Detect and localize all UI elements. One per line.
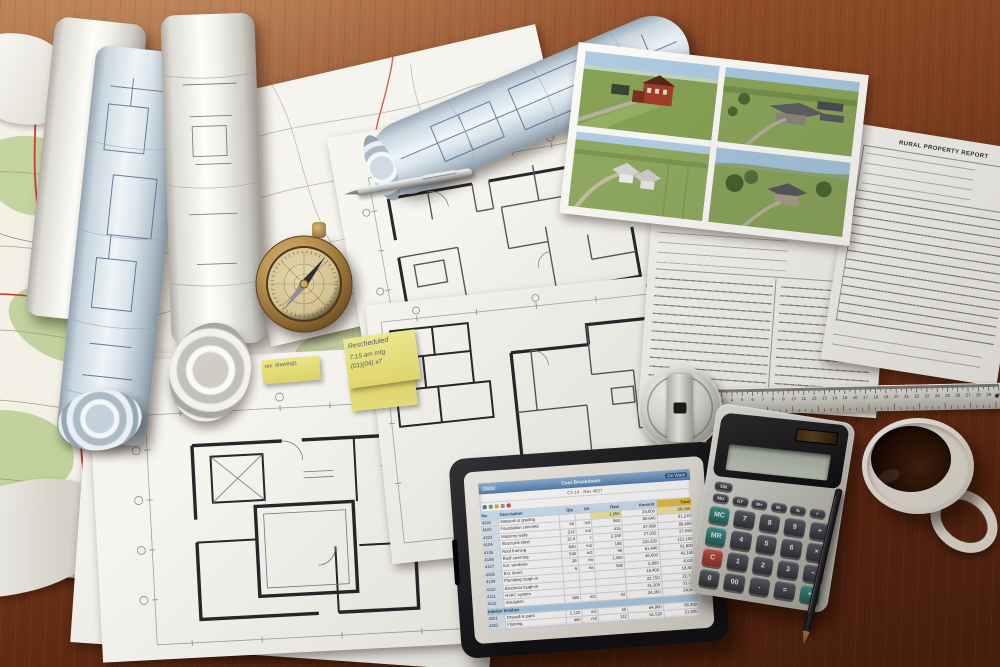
tablet-bezel: Done Cost Breakdown On Work Ch 14 · Rev … xyxy=(463,456,714,644)
ruler-number-17: 17 xyxy=(863,395,868,400)
calculator-key-3[interactable]: 3 xyxy=(777,559,800,579)
sheet-cell[interactable]: 580 xyxy=(565,595,582,603)
sheet-cell[interactable]: 4104 xyxy=(482,541,501,549)
calculator-key-0[interactable]: 0 xyxy=(698,568,721,588)
calculator-key-00[interactable]: 00 xyxy=(723,572,746,592)
calculator-key-4[interactable]: 4 xyxy=(730,530,753,550)
sheet-cell[interactable]: 4201 xyxy=(487,615,506,623)
calculator-on-key[interactable]: ON xyxy=(714,481,733,492)
sheet-cell[interactable]: 4101 xyxy=(481,519,500,527)
ruler-number-13: 13 xyxy=(822,395,827,400)
ruler-hang-hole xyxy=(995,394,999,398)
calculator-display xyxy=(725,444,831,480)
ruler-number-22: 22 xyxy=(914,393,919,398)
ruler-number-20: 20 xyxy=(894,394,899,399)
sheet-cell[interactable]: 84 xyxy=(560,521,577,529)
sheet-cell[interactable]: ea xyxy=(579,564,596,572)
sheet-cell[interactable]: 28,900 xyxy=(664,616,699,625)
tablet-sheet-body[interactable]: NoDescriptionQtyUnRateAmountTotal4101Sit… xyxy=(480,498,700,631)
form-body-lines xyxy=(836,194,1000,345)
ruler-number-29: 29 xyxy=(986,392,991,397)
sheet-cell[interactable]: ea xyxy=(578,557,595,565)
ruler-number-14: 14 xyxy=(832,395,837,400)
calculator-key-C[interactable]: C xyxy=(701,547,724,567)
ruler-number-28: 28 xyxy=(976,392,981,397)
sheet-cell[interactable]: No xyxy=(480,511,499,519)
ruler-number-24: 24 xyxy=(935,393,940,398)
calculator-key-9[interactable]: 9 xyxy=(783,517,806,537)
sticky-tab: rev. drawings xyxy=(261,356,321,385)
ruler-number-25: 25 xyxy=(945,393,950,398)
toolbar-save-icon[interactable] xyxy=(489,505,493,509)
sheet-cell[interactable]: t xyxy=(577,535,594,543)
ruler-number-21: 21 xyxy=(904,394,909,399)
sheet-cell[interactable]: 4102 xyxy=(481,527,500,535)
tablet-screen: Done Cost Breakdown On Work Ch 14 · Rev … xyxy=(478,469,700,631)
sheet-cell[interactable]: 212 xyxy=(560,529,577,537)
plan-roll-drawing xyxy=(160,12,265,345)
aerial-photo-hilltop-house xyxy=(708,147,851,237)
aerial-photo-card xyxy=(559,42,869,246)
sheet-cell[interactable]: 4105 xyxy=(483,549,502,557)
sheet-cell[interactable] xyxy=(580,572,597,580)
ruler-number-15: 15 xyxy=(843,395,848,400)
sheet-cell[interactable] xyxy=(559,514,576,522)
rolled-plan-white-2 xyxy=(160,12,265,345)
calculator-solar-panel xyxy=(795,428,839,445)
sheet-cell[interactable]: 28 xyxy=(562,558,579,566)
sheet-cell[interactable] xyxy=(564,580,581,588)
tablet-done-button[interactable]: Done xyxy=(481,485,496,491)
sheet-cell[interactable]: 4108 xyxy=(484,571,503,579)
aerial-photo-white-farmhouse xyxy=(568,131,711,221)
sheet-cell[interactable]: 4112 xyxy=(486,600,505,608)
ruler-number-7: 7 xyxy=(762,397,765,402)
sticky-tab-line: rev. drawings xyxy=(264,357,317,372)
ruler-number-16: 16 xyxy=(853,395,858,400)
calculator-key-MC[interactable]: MC xyxy=(708,505,731,525)
sheet-cell[interactable] xyxy=(581,586,598,594)
sheet-cell[interactable]: m2 xyxy=(578,550,595,558)
brass-compass xyxy=(254,234,354,334)
tablet-onwork-button[interactable]: On Work xyxy=(665,472,687,478)
sheet-cell[interactable]: m2 xyxy=(577,542,594,550)
toolbar-print-icon[interactable] xyxy=(501,504,505,508)
desk-scene: Rescheduled 7:15 am mtg (01)(04) x7 rev.… xyxy=(0,0,1000,667)
sheet-cell[interactable] xyxy=(563,573,580,581)
calculator-power-key-row: ON xyxy=(714,481,733,492)
calculator-key-6[interactable]: 6 xyxy=(780,538,803,558)
ruler-number-18: 18 xyxy=(873,394,878,399)
sheet-cell[interactable]: 12.4 xyxy=(561,536,578,544)
calculator-key-=[interactable]: = xyxy=(773,580,796,600)
ruler-number-26: 26 xyxy=(955,393,960,398)
ruler-number-10: 10 xyxy=(791,396,796,401)
sheet-cell[interactable] xyxy=(599,621,629,629)
sheet-cell[interactable]: 7,400 xyxy=(600,629,630,632)
sheet-cell[interactable]: m2 xyxy=(582,609,599,617)
calculator-key-GT[interactable]: GT xyxy=(732,496,749,506)
sheet-cell[interactable] xyxy=(575,513,592,521)
sheet-cell[interactable]: 460 xyxy=(566,617,583,625)
sticky-note-stack: Rescheduled 7:15 am mtg (01)(04) x7 xyxy=(346,334,412,410)
sheet-cell[interactable]: 4103 xyxy=(482,534,501,542)
toolbar-filter-icon[interactable] xyxy=(507,503,511,507)
tablet: Done Cost Breakdown On Work Ch 14 · Rev … xyxy=(448,441,729,659)
sheet-cell[interactable] xyxy=(567,624,584,631)
toolbar-undo-icon[interactable] xyxy=(483,505,487,509)
pencil-tip xyxy=(800,630,810,647)
sheet-cell[interactable] xyxy=(580,579,597,587)
sheet-cell[interactable]: ea xyxy=(584,631,601,632)
sheet-cell[interactable]: 640 xyxy=(562,551,579,559)
calculator-key-8[interactable]: 8 xyxy=(758,513,781,533)
sheet-cell[interactable]: 4203 xyxy=(488,630,507,631)
ruler-number-23: 23 xyxy=(925,393,930,398)
sheet-cell[interactable]: 640 xyxy=(561,543,578,551)
aerial-photo-brick-estate xyxy=(577,51,720,141)
ruler-number-5: 5 xyxy=(741,397,744,402)
sheet-cell[interactable]: m3 xyxy=(576,520,593,528)
tablet-doc-title: Cost Breakdown xyxy=(561,478,601,487)
sheet-cell[interactable]: 6 xyxy=(563,565,580,573)
calculator-key-7[interactable]: 7 xyxy=(733,509,756,529)
calculator-head xyxy=(712,412,849,489)
tape-measure xyxy=(638,366,722,450)
calculator-key-2[interactable]: 2 xyxy=(751,555,774,575)
toolbar-highlight-icon[interactable] xyxy=(495,504,499,508)
sheet-cell[interactable] xyxy=(583,623,600,631)
calculator-key-MU[interactable]: MU xyxy=(712,493,729,503)
compass-face xyxy=(254,234,354,334)
calculator-key-M+[interactable]: M+ xyxy=(751,499,768,509)
sheet-cell[interactable]: m2 xyxy=(576,527,593,535)
calculator-keypad: MC789÷MR456×C123−000.=+ xyxy=(698,505,831,604)
sheet-cell[interactable]: m2 xyxy=(581,594,598,602)
ruler-number-12: 12 xyxy=(812,396,817,401)
sheet-cell[interactable]: 1,120 xyxy=(566,610,583,618)
ruler-number-4: 4 xyxy=(731,397,734,402)
calculator-key-5[interactable]: 5 xyxy=(755,534,778,554)
aerial-photo-ranch-house xyxy=(717,67,860,157)
sheet-cell[interactable]: 22,200 xyxy=(630,626,666,631)
calculator-key-1[interactable]: 1 xyxy=(726,551,749,571)
sheet-cell[interactable]: 4111 xyxy=(486,593,505,601)
ruler-number-27: 27 xyxy=(966,392,971,397)
calculator-key-√[interactable]: √ xyxy=(809,508,826,518)
tape-measure-window xyxy=(674,403,687,414)
sheet-cell[interactable] xyxy=(564,588,581,596)
ruler-number-9: 9 xyxy=(782,396,785,401)
sheet-cell[interactable]: 4202 xyxy=(488,622,507,630)
ruler-number-8: 8 xyxy=(772,396,775,401)
sheet-cell[interactable]: 22,400 xyxy=(665,624,700,632)
sheet-cell[interactable]: 4109 xyxy=(485,578,504,586)
ruler-number-11: 11 xyxy=(802,396,807,401)
sheet-cell[interactable]: 28,900 xyxy=(629,619,665,628)
sheet-cell[interactable]: m2 xyxy=(583,616,600,624)
ruler-number-19: 19 xyxy=(884,394,889,399)
sheet-cell[interactable]: Un xyxy=(575,505,592,513)
coffee-cup xyxy=(862,418,974,514)
calculator-key-.[interactable]: . xyxy=(748,576,771,596)
sheet-cell[interactable]: 4106 xyxy=(483,556,502,564)
sheet-cell[interactable]: 4110 xyxy=(485,586,504,594)
calculator-key-%[interactable]: % xyxy=(789,505,806,515)
calculator-key-MR[interactable]: MR xyxy=(705,526,728,546)
calculator-key-M-[interactable]: M- xyxy=(770,502,787,512)
sticky-note-top: Rescheduled 7:15 am mtg (01)(04) x7 xyxy=(343,329,421,389)
ruler-number-6: 6 xyxy=(751,397,754,402)
sheet-cell[interactable]: Qty xyxy=(559,506,576,514)
sheet-cell[interactable]: 4107 xyxy=(484,563,503,571)
